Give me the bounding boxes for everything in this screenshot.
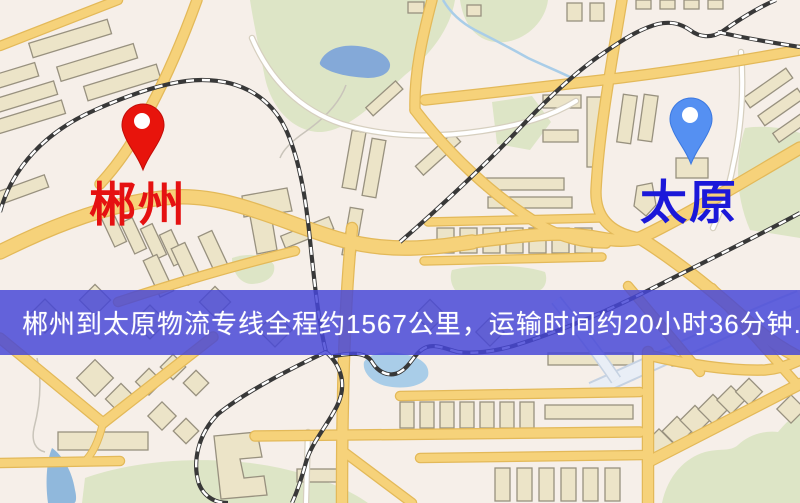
route-info-text: 郴州到太原物流专线全程约1567公里，运输时间约20小时36分钟.	[22, 304, 800, 341]
route-info-banner: 郴州到太原物流专线全程约1567公里，运输时间约20小时36分钟.	[0, 290, 800, 355]
map-canvas: 郴州 太原	[0, 0, 800, 503]
destination-label: 太原	[640, 176, 738, 231]
origin-label: 郴州	[89, 178, 187, 233]
logistics-route-map: 郴州 太原 郴州到太原物流专线全程约1567公里，运输时间约20小时36分钟.	[0, 0, 800, 503]
